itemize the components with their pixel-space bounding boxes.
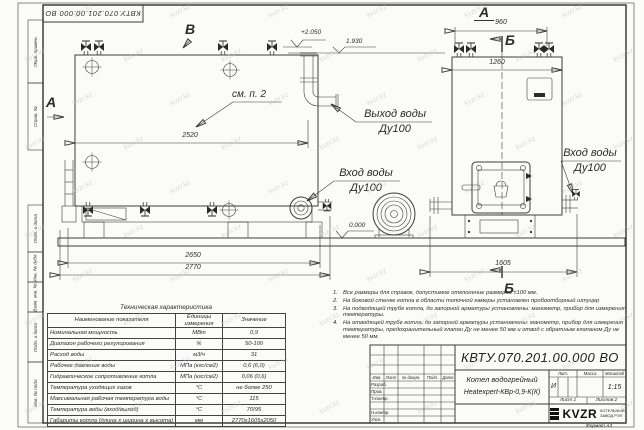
water-inlet-label: Вход воды <box>330 167 402 179</box>
tech-table-cell: 0,6 (6,0) <box>223 361 286 372</box>
tech-col-value: Значение <box>223 314 286 328</box>
tech-table-cell: 50-100 <box>223 339 286 350</box>
tech-col-units: Единицы измерения <box>176 314 223 328</box>
format-note: Формат А3 <box>574 423 624 429</box>
tech-table-cell: Габариты котла (длина х ширина х высота) <box>48 416 176 427</box>
note-item: 4.На отводящей трубе котла, до запорной … <box>333 320 625 340</box>
tech-table-title: Техническая характеристика <box>47 304 285 311</box>
titleblock-col-list: Лист <box>384 374 398 381</box>
titleblock-col-podp: Подп. <box>424 374 441 381</box>
note-item: 1.Все размеры для справок, допустимое от… <box>333 290 625 297</box>
titleblock-sheets: Листов 2 <box>588 397 625 404</box>
titleblock-name-line1: Котел водогрейный <box>456 373 548 385</box>
boiler-side-view <box>62 41 338 238</box>
tech-table-cell: Диапазон рабочего регулирования <box>48 339 176 350</box>
elevation-top: +2.050 <box>301 29 321 36</box>
tech-table-row: Гидравлическое сопротивление котлаМПа (к… <box>48 372 286 383</box>
water-outlet-dn: Ду100 <box>356 123 434 135</box>
titleblock-lit-value: И <box>549 378 558 394</box>
tech-table-cell: не более 250 <box>223 383 286 394</box>
elevation-zero: 0.000 <box>349 222 365 229</box>
water-inlet-right-label: Вход воды <box>556 147 624 159</box>
tech-table-cell: 31 <box>223 350 286 361</box>
dim-2520: 2520 <box>155 132 225 139</box>
tech-table-cell: МПа (кгс/см2) <box>176 372 223 383</box>
frame-field-inv-podl: Инв. № подл. <box>28 362 43 423</box>
note-text: На подводящей трубе котла, до запорной а… <box>343 306 625 320</box>
top-corner-stamp: КВТУ.070.201.00.000 ВО <box>43 5 143 22</box>
company-logo-cell: KVZR КОТЕЛЬНЫЙ ЗАВОД РЭП <box>550 405 625 422</box>
titleblock-name-line2: Heatexpert-КВр-0,9-К(К) <box>456 386 548 398</box>
titleblock-col-dokum: № докум. <box>398 374 424 381</box>
tech-table-cell: МВт <box>176 328 223 339</box>
water-inlet-dn: Ду100 <box>330 182 402 194</box>
view-arrows <box>47 40 190 117</box>
blower-fan <box>373 193 415 238</box>
titleblock-lit-label: Лит. <box>549 370 577 377</box>
dim-2650: 2650 <box>158 252 228 259</box>
ground-line <box>58 238 625 246</box>
see-note-label: см. п. 2 <box>232 89 266 100</box>
tech-table-row: Диапазон рабочего регулирования%50-100 <box>48 339 286 350</box>
drawing-sheet: Перв. примен. Справ. № Подп. и дата Инв.… <box>0 0 644 430</box>
titleblock-row-tkontr: Т.контр. <box>371 395 397 402</box>
tech-table-row: Температура воды (вход/выход)°С70/95 <box>48 405 286 416</box>
tech-table-cell: 2770х1605х2050 <box>223 416 286 427</box>
kvzr-logo-icon <box>550 408 559 420</box>
tech-table-cell: 0,9 <box>223 328 286 339</box>
titleblock-row-razrab: Разраб. <box>371 381 397 388</box>
titleblock-row-prov: Пров. <box>371 388 397 395</box>
titleblock-row-utv: Утв. <box>371 416 397 423</box>
titleblock-designation: КВТУ.070.201.00.000 ВО <box>456 346 624 369</box>
titleblock-scale-label: Масштаб <box>603 370 626 377</box>
frame-field-vzam-inv: Взам. инв. № <box>28 282 43 312</box>
elevation-outlet: 1.930 <box>346 38 362 45</box>
tech-table-cell: Температура воды (вход/выход) <box>48 405 176 416</box>
tech-table: Наименование показателя Единицы измерени… <box>47 313 286 427</box>
company-name: КОТЕЛЬНЫЙ ЗАВОД РЭП <box>600 409 624 418</box>
tech-table-cell: Расход воды <box>48 350 176 361</box>
tech-table-cell: Гидравлическое сопротивление котла <box>48 372 176 383</box>
tech-col-name: Наименование показателя <box>48 314 176 328</box>
note-text: На отводящей трубе котла, до запорной ар… <box>343 320 625 340</box>
water-outlet-label: Выход воды <box>356 108 434 120</box>
tech-table-row: Расход водым3/ч31 <box>48 350 286 361</box>
tech-table-cell: Номинальная мощность <box>48 328 176 339</box>
note-number: 1. <box>333 290 343 297</box>
tech-table-cell: Температура уходящих газов <box>48 383 176 394</box>
tech-table-row: Рабочее давление водыМПа (кгс/см2)0,6 (6… <box>48 361 286 372</box>
tech-table-cell: МПа (кгс/см2) <box>176 361 223 372</box>
frame-field-perv-primen: Перв. примен. <box>28 20 43 83</box>
dim-1605: 1605 <box>473 260 533 267</box>
view-letter-a-left: А <box>46 94 56 110</box>
titleblock-row-nkontr: Н.контр. <box>371 409 397 416</box>
tech-table-cell: Максимальная рабочая температура воды <box>48 394 176 405</box>
tech-table-cell: 0,06 (0,6) <box>223 372 286 383</box>
tech-table-cell: °С <box>176 394 223 405</box>
tech-table-row: Габариты котла (длина х ширина х высота)… <box>48 416 286 427</box>
note-item: 2.На боковой стенке котла в области топо… <box>333 298 625 305</box>
note-text: На боковой стенке котла в области топочн… <box>343 298 625 305</box>
note-number: 3. <box>333 306 343 320</box>
frame-field-sprav-no: Справ. № <box>28 83 43 150</box>
tech-table-row: Температура уходящих газов°Сне более 250 <box>48 383 286 394</box>
titleblock-col-data: Дата <box>441 374 455 381</box>
tech-table-cell: °С <box>176 405 223 416</box>
dim-1260: 1260 <box>467 59 527 66</box>
titleblock-sheet: Лист 1 <box>550 397 586 404</box>
note-number: 4. <box>333 320 343 340</box>
tech-table-row: Максимальная рабочая температура воды°С1… <box>48 394 286 405</box>
dim-960: 960 <box>471 19 531 26</box>
elevation-marks <box>283 40 445 238</box>
note-text: Все размеры для справок, допустимое откл… <box>343 290 625 297</box>
frame-field-podp-data-2: Подп. и дата <box>28 312 43 362</box>
tech-table-cell: м3/ч <box>176 350 223 361</box>
note-number: 2. <box>333 298 343 305</box>
tech-table-cell: °С <box>176 383 223 394</box>
titleblock-col-izm: Изм. <box>370 374 384 381</box>
titleblock-scale-value: 1:15 <box>603 379 626 395</box>
tech-table-cell: Рабочее давление воды <box>48 361 176 372</box>
frame-field-podp-data-1: Подп. и дата <box>28 205 43 252</box>
tech-table-cell: % <box>176 339 223 350</box>
kvzr-logo-text: KVZR <box>562 407 597 421</box>
tech-table-cell: мм <box>176 416 223 427</box>
section-letter-b-top: Б <box>505 32 515 48</box>
note-item: 3.На подводящей трубе котла, до запорной… <box>333 306 625 320</box>
dim-2770: 2770 <box>158 264 228 271</box>
tech-table-cell: 70/95 <box>223 405 286 416</box>
frame-field-inv-dubl: Инв. № дубл. <box>28 252 43 282</box>
titleblock-mass-label: Масса <box>577 370 603 377</box>
tech-table-cell: 115 <box>223 394 286 405</box>
notes-list: 1.Все размеры для справок, допустимое от… <box>333 290 625 342</box>
tech-table-row: Номинальная мощностьМВт0,9 <box>48 328 286 339</box>
tech-table-header-row: Наименование показателя Единицы измерени… <box>48 314 286 328</box>
view-letter-v: В <box>185 21 195 37</box>
water-inlet-right-dn: Ду100 <box>556 162 624 174</box>
